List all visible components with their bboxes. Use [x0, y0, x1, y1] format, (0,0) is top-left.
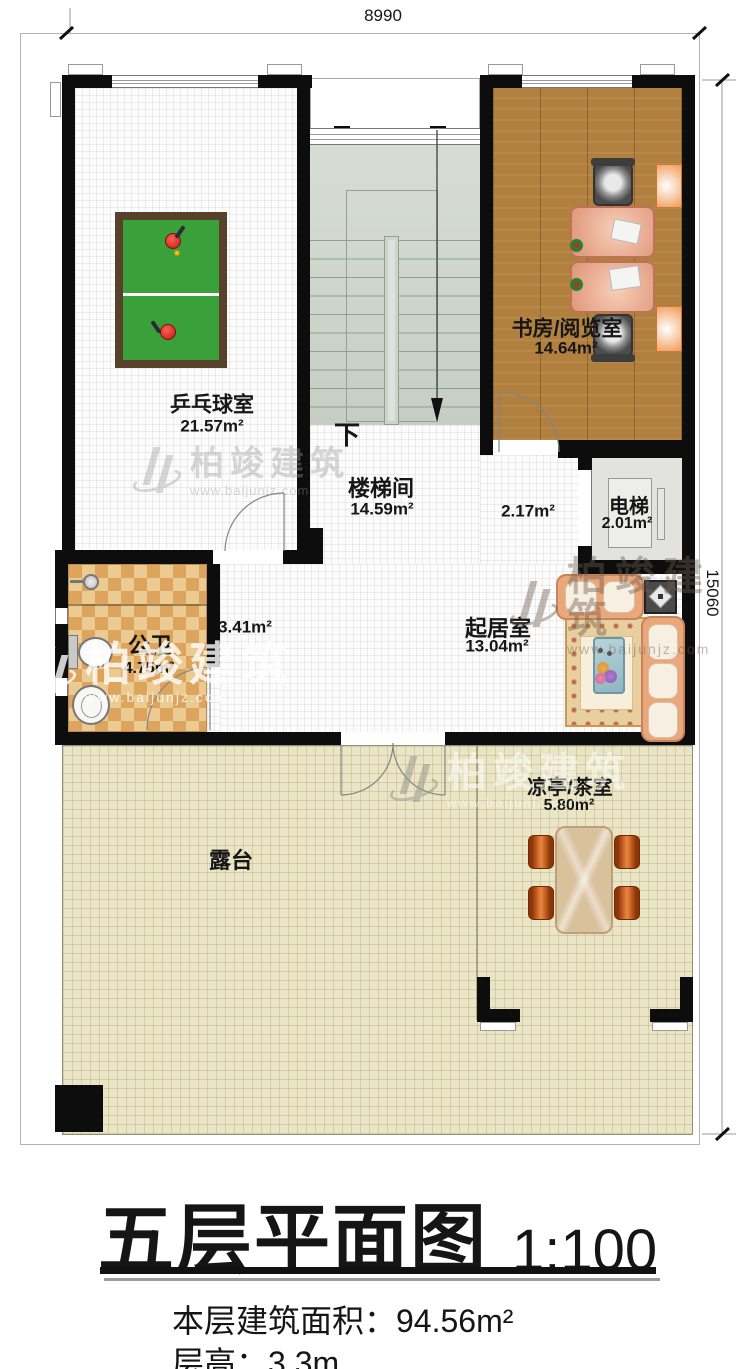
terrace-column: [680, 977, 693, 1022]
wall: [55, 732, 341, 745]
terrace-corner-column: [55, 1085, 103, 1132]
window: [55, 678, 68, 696]
shower-arm: [70, 580, 83, 583]
tea-chair: [528, 835, 554, 869]
side-cabinet: [656, 164, 682, 208]
table-decor-dot: [598, 648, 603, 653]
shower-head: [83, 574, 99, 590]
elevator-counterweight: [657, 488, 665, 540]
shower-partition-line: [68, 604, 207, 606]
wall: [578, 560, 695, 574]
window-sill: [68, 64, 103, 75]
wall: [578, 458, 592, 470]
window: [522, 75, 632, 88]
room-area-pavilion: 5.80m²: [544, 798, 595, 814]
room-area-living: 13.04m²: [465, 638, 528, 655]
window-sill: [50, 82, 61, 117]
desk-chair: [593, 163, 633, 206]
floorplan-drawing: 8990 15060 乒乓球室 21.57m² 书房/阅览室 14.64m² 楼…: [0, 0, 750, 1150]
room-area-bathroom: 4.75m²: [124, 661, 175, 677]
sink-basin: [81, 694, 102, 718]
flower-bouquet: [604, 670, 617, 683]
terrace-column: [490, 1009, 520, 1022]
floor-height-text: 层高：3.3m: [172, 1338, 339, 1369]
sofa-loveseat: [556, 574, 644, 620]
terrace-column: [477, 977, 490, 1022]
title-underline: [100, 1267, 656, 1274]
desk-plant: [569, 238, 584, 253]
window-sill: [267, 64, 302, 75]
room-label-elevator: 电梯: [609, 497, 649, 517]
toilet-tank: [68, 635, 78, 669]
ping-pong-net-line: [123, 293, 219, 296]
room-label-pavilion: 凉亭/茶室: [527, 778, 613, 798]
floor-area-text: 本层建筑面积：94.56m²: [172, 1296, 513, 1342]
wall: [310, 528, 323, 564]
floorplan-page: 8990 15060 乒乓球室 21.57m² 书房/阅览室 14.64m² 楼…: [0, 0, 750, 1369]
laptop: [609, 265, 642, 291]
title-underline-shadow: [104, 1278, 660, 1281]
room-area-study: 14.64m²: [534, 340, 597, 357]
sofa-main: [641, 616, 685, 742]
wall: [558, 440, 695, 458]
tea-chair: [614, 835, 640, 869]
end-table: [644, 580, 677, 614]
area-corridor: 2.17m²: [501, 503, 555, 520]
wall: [578, 546, 592, 560]
room-area-table-tennis: 21.57m²: [180, 418, 243, 435]
wall: [55, 550, 68, 745]
room-area-stair-hall: 14.59m²: [350, 501, 413, 518]
toilet-bowl: [78, 637, 113, 668]
terrace-column: [650, 1009, 680, 1022]
window: [55, 608, 68, 624]
tea-table: [555, 826, 613, 934]
wall: [480, 75, 493, 455]
room-label-table-tennis: 乒乓球室: [170, 395, 254, 416]
column-sill: [652, 1022, 688, 1031]
room-label-terrace: 露台: [209, 850, 253, 872]
room-area-elevator: 2.01m²: [602, 516, 653, 532]
wall: [207, 564, 220, 667]
wall: [480, 75, 522, 88]
table-decor-dot: [607, 651, 612, 656]
room-label-bathroom: 公卫: [128, 635, 172, 657]
ping-pong-paddle: [160, 324, 176, 340]
bathroom-door-gap-floor: [207, 667, 220, 732]
ping-pong-ball: [174, 250, 180, 256]
dimension-height: 15060: [702, 533, 722, 653]
wall: [55, 550, 213, 564]
elevator-door-line: [591, 468, 592, 548]
title-block: 五层平面图 1:100 本层建筑面积：94.56m² 层高：3.3m: [0, 1150, 750, 1369]
stair-direction-label: 下: [334, 422, 360, 448]
desk-chair-back: [591, 158, 635, 166]
tea-chair: [614, 886, 640, 920]
window-sill: [488, 64, 523, 75]
dimension-width: 8990: [364, 6, 402, 26]
room-label-study: 书房/阅览室: [512, 319, 623, 340]
flower-bouquet: [595, 673, 606, 684]
desk-plant: [569, 277, 584, 292]
wall: [62, 75, 75, 550]
tea-chair: [528, 886, 554, 920]
area-hall: 3.41m²: [218, 619, 272, 636]
terrace-floor: [62, 745, 693, 1135]
room-label-stair-hall: 楼梯间: [348, 478, 414, 500]
column-sill: [480, 1022, 516, 1031]
window: [112, 75, 258, 88]
wall: [297, 75, 310, 550]
side-cabinet: [656, 306, 682, 352]
window: [310, 128, 480, 145]
window-sill: [640, 64, 675, 75]
stair-rail: [384, 236, 399, 425]
